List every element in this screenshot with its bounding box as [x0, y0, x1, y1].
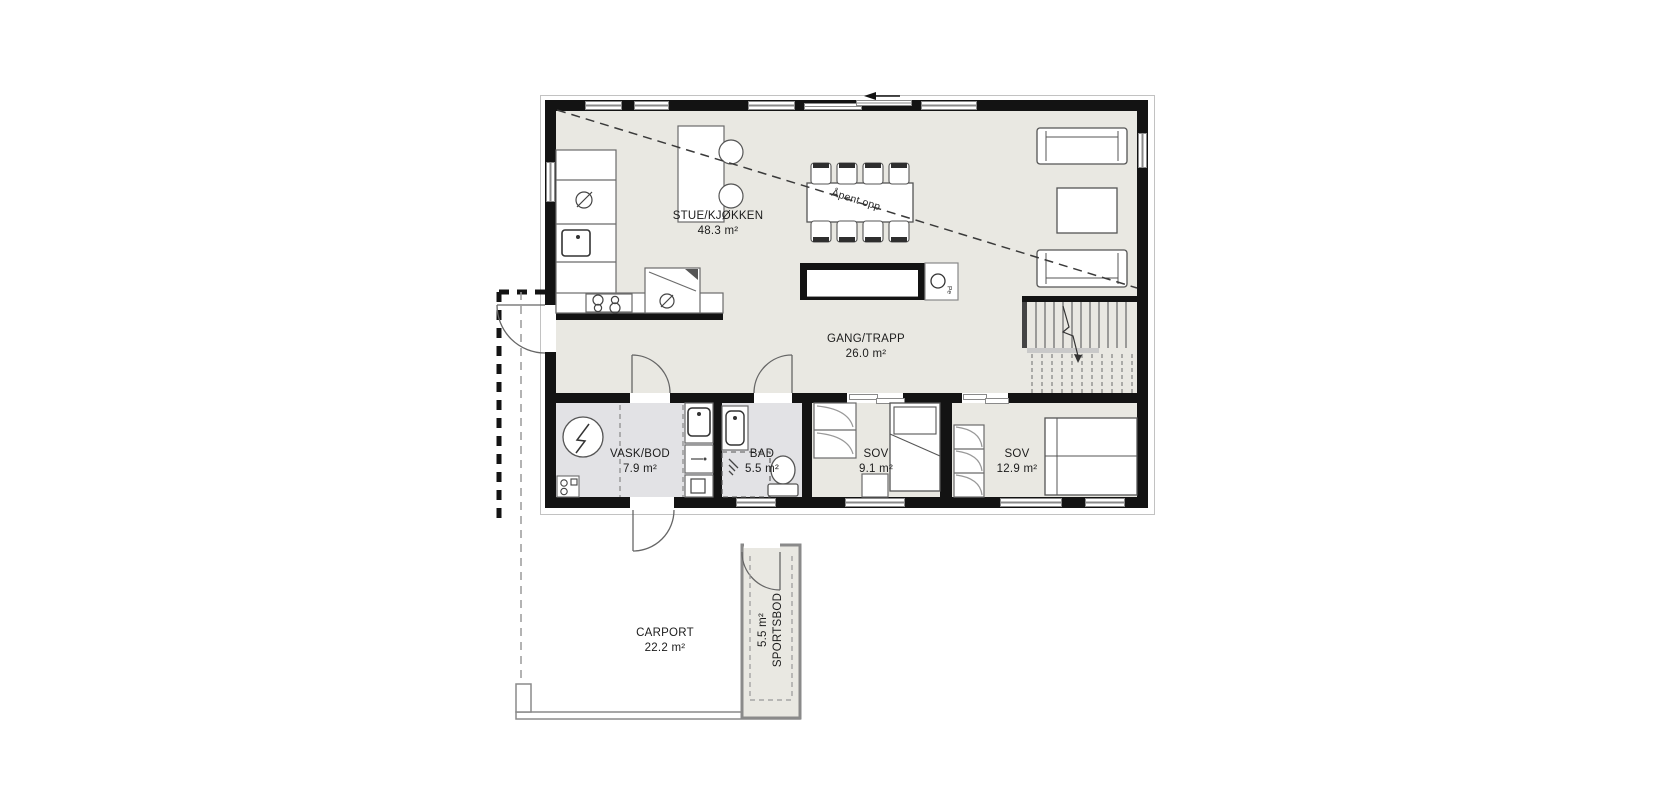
nightstand	[862, 474, 888, 497]
room-name: SOV	[997, 447, 1038, 462]
single-bed	[890, 403, 940, 491]
sofa	[1037, 250, 1127, 287]
fireplace-label: Pe	[946, 286, 953, 294]
wardrobe	[814, 403, 856, 458]
bad-door	[754, 355, 792, 393]
water-heater-icon	[563, 417, 603, 457]
vask-fixtures	[685, 403, 713, 497]
room-name: CARPORT	[636, 626, 694, 641]
room-name: BAD	[745, 447, 779, 462]
coffee-table	[1057, 188, 1117, 233]
fireplace	[925, 263, 958, 300]
room-name: GANG/TRAPP	[827, 332, 905, 347]
room-name: VASK/BOD	[610, 447, 670, 462]
room-area: 26.0 m²	[827, 347, 905, 362]
stair-arrow	[1074, 354, 1082, 363]
room-name: SOV	[859, 447, 893, 462]
staircase	[1022, 302, 1132, 393]
room-label-sov-2: SOV 12.9 m²	[997, 447, 1038, 477]
cooktop-icon	[586, 294, 632, 313]
room-label-sov-1: SOV 9.1 m²	[859, 447, 893, 477]
carport-door	[633, 510, 674, 551]
plan-graphics	[0, 0, 1670, 800]
sofa	[1037, 128, 1127, 164]
room-name: SPORTSBOD	[771, 593, 786, 667]
washer-unit	[557, 476, 579, 497]
room-area: 12.9 m²	[997, 462, 1038, 477]
corner-cabinet-sink	[645, 268, 700, 313]
wardrobe	[954, 425, 984, 497]
shower-head-icon	[729, 459, 738, 475]
floor-plan-sheet: STUE/KJØKKEN 48.3 m² GANG/TRAPP 26.0 m² …	[0, 0, 1670, 800]
room-label-gang-trapp: GANG/TRAPP 26.0 m²	[827, 332, 905, 362]
room-name: STUE/KJØKKEN	[673, 209, 764, 224]
room-label-stue-kjokken: STUE/KJØKKEN 48.3 m²	[673, 209, 764, 239]
vask-door	[632, 355, 670, 393]
room-label-vask-bod: VASK/BOD 7.9 m²	[610, 447, 670, 477]
double-bed	[1045, 418, 1137, 495]
room-area: 22.2 m²	[636, 641, 694, 656]
kitchen-basin-icon	[562, 230, 590, 256]
room-area: 5.5 m²	[756, 593, 771, 667]
sportsbod-door-opening	[744, 541, 780, 548]
sliding-door-arrow-icon	[864, 92, 900, 100]
carport-post	[516, 684, 531, 712]
room-area: 9.1 m²	[859, 462, 893, 477]
room-area: 7.9 m²	[610, 462, 670, 477]
bathroom-sink	[722, 406, 748, 450]
room-area: 48.3 m²	[673, 224, 764, 239]
room-label-carport: CARPORT 22.2 m²	[636, 626, 694, 656]
room-area: 5.5 m²	[745, 462, 779, 477]
kitchen-peninsula	[678, 126, 743, 222]
room-label-sportsbod: 5.5 m² SPORTSBOD	[756, 593, 786, 667]
roof-overhang-dashed-line	[499, 292, 549, 520]
room-label-bad: BAD 5.5 m²	[745, 447, 779, 477]
bar-stool	[719, 184, 743, 208]
